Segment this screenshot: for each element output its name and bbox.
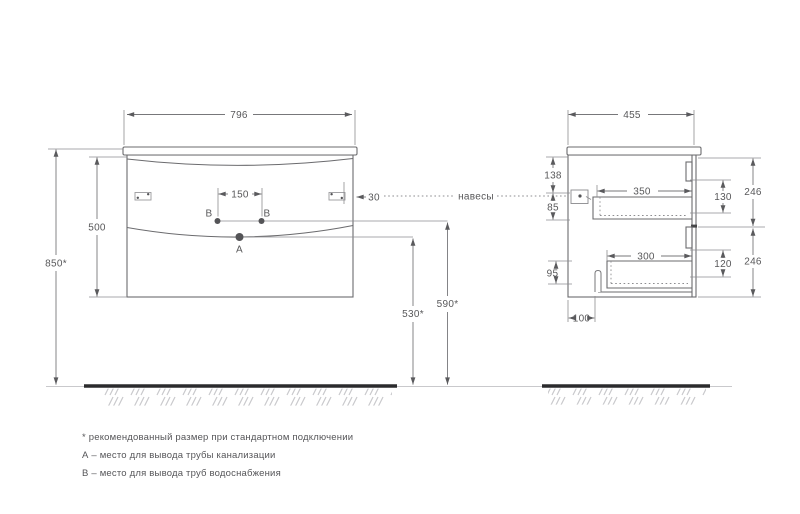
point-a-label: А [236, 245, 243, 256]
hanger-screw-icon [330, 193, 332, 195]
countertop-front [123, 147, 357, 155]
dim-label-796: 796 [230, 110, 248, 121]
note-point-b: В – место для вывода труб водоснабжения [82, 468, 281, 479]
point-b-right-label: В [264, 209, 271, 220]
note-point-a: А – место для вывода трубы канализации [82, 450, 275, 461]
point-b-left-label: В [206, 209, 213, 220]
point-a-dot [236, 233, 244, 241]
dim-cabinet-height: 500 [88, 157, 127, 297]
dim-hanger-inset: 30 [357, 193, 380, 204]
hangers-callout: навесы [384, 192, 566, 203]
dim-label-500: 500 [88, 223, 106, 234]
hangers-label: навесы [458, 192, 494, 203]
drain-pipe-outline [595, 271, 601, 293]
cabinet-body-side [568, 155, 696, 297]
dim-drain-height: 530* [402, 239, 424, 385]
dim-supply-height: 590* [437, 223, 459, 385]
hanger-screw-icon [147, 193, 149, 195]
side-view: 455 [544, 110, 765, 325]
note-recommended-size: * рекомендованный размер при стандартном… [82, 432, 353, 443]
dim-label-85: 85 [547, 203, 559, 214]
hanger-screw-icon [137, 197, 139, 199]
dim-label-130: 130 [714, 192, 732, 203]
point-b-left-dot [215, 218, 221, 224]
front-view: 796 30 навесы [45, 110, 566, 385]
hanger-bracket-dot [578, 194, 581, 197]
dim-label-100: 100 [573, 314, 591, 325]
floor [46, 386, 732, 406]
dim-label-850: 850* [45, 259, 67, 270]
dim-label-300: 300 [637, 252, 655, 263]
dim-label-120: 120 [714, 259, 732, 270]
dim-label-246-bottom: 246 [744, 257, 762, 268]
dim-pipe-from-back: 100 [568, 296, 595, 325]
dim-label-95: 95 [547, 269, 559, 280]
hanger-screw-icon [341, 197, 343, 199]
dim-label-530: 530* [402, 309, 424, 320]
hanger-bracket-side [571, 190, 591, 204]
dim-label-590: 590* [437, 299, 459, 310]
dim-hanger-to-drawer: 85 [546, 194, 570, 221]
dim-label-138: 138 [544, 171, 562, 182]
drawing-canvas: 796 30 навесы [0, 0, 800, 514]
dim-hanger-from-top: 138 [544, 157, 570, 193]
cabinet-body-front [127, 155, 353, 297]
dim-mount-height: 850* [45, 149, 123, 385]
hanger-mark-left [135, 193, 151, 201]
dim-label-350: 350 [633, 187, 651, 198]
dim-label-246-top: 246 [744, 187, 762, 198]
dim-label-150: 150 [231, 190, 249, 201]
dim-front-width: 796 [124, 110, 355, 145]
countertop-side [567, 147, 701, 155]
dim-label-30: 30 [368, 193, 380, 204]
dim-depth: 455 [568, 110, 694, 145]
vanity-technical-drawing: 796 30 навесы [0, 0, 800, 514]
notes: * рекомендованный размер при стандартном… [82, 432, 353, 479]
floor-hatch-front [100, 389, 392, 406]
floor-hatch-side [548, 389, 706, 405]
dim-label-455: 455 [623, 110, 641, 121]
